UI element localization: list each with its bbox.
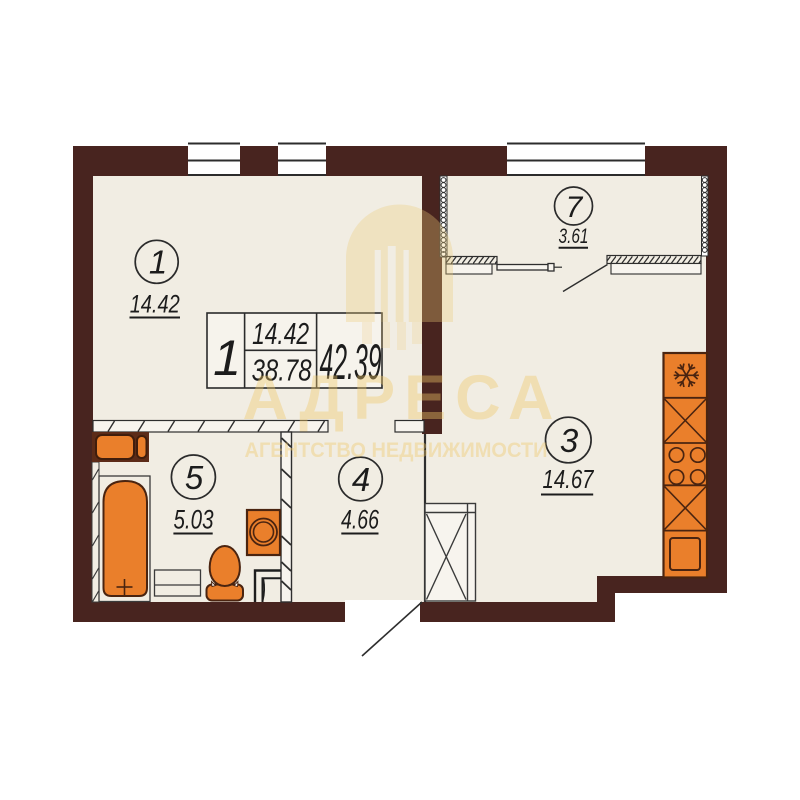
- svg-text:3: 3: [560, 422, 579, 459]
- svg-text:5.03: 5.03: [174, 505, 214, 535]
- svg-text:4.66: 4.66: [341, 505, 380, 535]
- svg-text:3.61: 3.61: [559, 225, 589, 248]
- svg-text:1: 1: [213, 330, 241, 386]
- svg-text:7: 7: [566, 191, 584, 224]
- svg-text:14.42: 14.42: [130, 291, 180, 319]
- svg-text:14.67: 14.67: [543, 464, 595, 494]
- svg-text:АГЕНТСТВО НЕДВИЖИМОСТИ: АГЕНТСТВО НЕДВИЖИМОСТИ: [245, 439, 548, 462]
- svg-text:4: 4: [352, 461, 370, 498]
- svg-text:5: 5: [185, 459, 204, 496]
- svg-text:1: 1: [149, 244, 167, 281]
- svg-text:14.42: 14.42: [252, 316, 309, 351]
